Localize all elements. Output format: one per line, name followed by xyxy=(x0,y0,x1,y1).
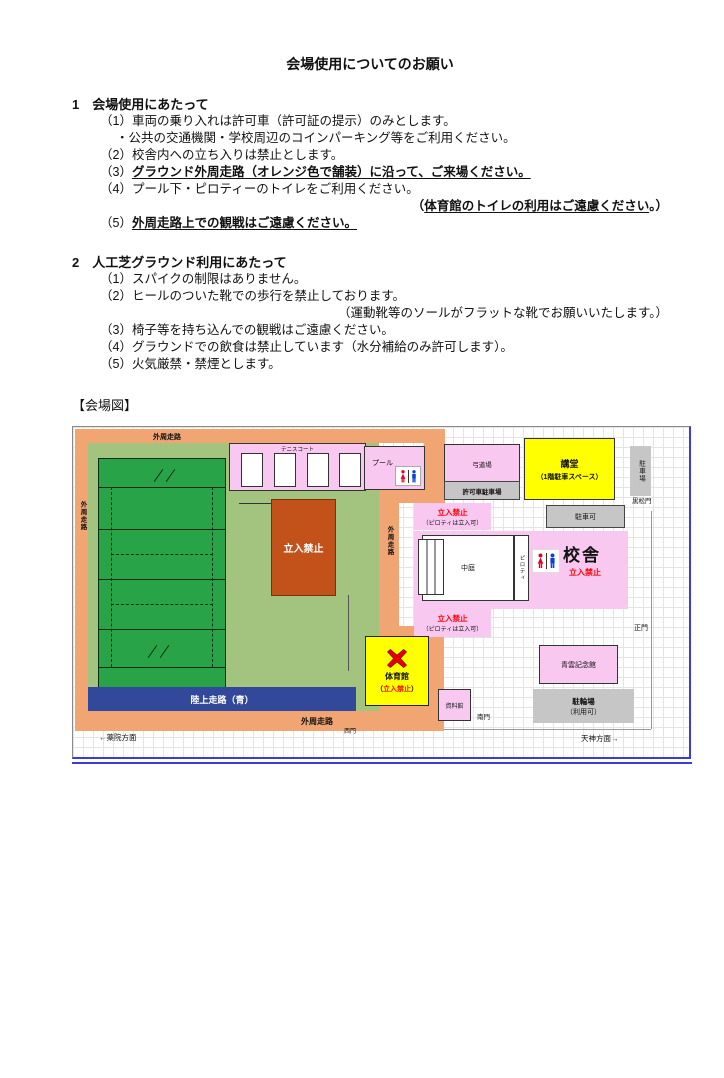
s1-item-1: （1）車両の乗り入れは許可車（許可証の提示）のみとします。 xyxy=(100,113,668,130)
auditorium: 講堂 （1階駐車スペース） xyxy=(524,438,615,500)
gym-label: 体育館 xyxy=(385,671,409,682)
pool-restroom xyxy=(395,466,421,486)
track-mid-label: 外周走路 xyxy=(384,526,394,556)
s2-item-3: （3）椅子等を持ち込んでの観戦はご遠慮ください。 xyxy=(100,322,668,339)
map-caption: 【会場図】 xyxy=(72,395,668,414)
pitch-line xyxy=(99,529,225,530)
s1-item-4-note-open: （ xyxy=(412,199,425,213)
pitch-mark xyxy=(166,469,175,482)
wc-divider xyxy=(408,470,409,483)
tennis-courts: テニスコート xyxy=(229,443,366,491)
s1-item-5: （5）外周走路上での観戦はご遠慮ください。 xyxy=(100,215,668,232)
s2-item-2-note: （運動靴等のソールがフラットな靴でお願いいたします。） xyxy=(72,305,668,322)
school-building-label: 校舎 xyxy=(563,541,601,566)
archives-hall: 資料館 xyxy=(438,689,471,721)
s2-item-2: （2）ヒールのついた靴での歩行を禁止しております。 xyxy=(100,288,668,305)
keepout-bottom-label: 立入禁止 xyxy=(438,613,468,624)
courtyard-label: 中庭 xyxy=(461,563,475,573)
s1-item-3-num: （3） xyxy=(100,165,132,179)
pitch-line-dashed xyxy=(111,604,213,605)
parking-lot: 駐車場 xyxy=(630,446,651,496)
parking-lot-label: 駐車場 xyxy=(636,460,646,483)
venue-map: 外周走路 外周走路 外周走路 外周走路 xyxy=(72,426,691,759)
wc-divider xyxy=(546,553,547,569)
keepout-top-label: 立入禁止 xyxy=(438,507,468,518)
tennis-court-outline xyxy=(339,453,361,487)
map-line xyxy=(348,595,349,671)
boundary-line-v xyxy=(651,511,652,729)
section1-heading: 1 会場使用にあたって xyxy=(72,94,668,113)
s1-item-2: （2）校舎内への立ち入りは禁止とします。 xyxy=(100,147,668,164)
s2-item-5: （5）火気厳禁・禁煙とします。 xyxy=(100,356,668,373)
s1-item-4-note-emph: 体育館のトイレの利用はご遠慮ください xyxy=(424,199,649,213)
s1-item-3-emph: グラウンド外周走路（オレンジ色で舗装）に沿って、ご来場ください。 xyxy=(132,165,531,179)
piloti-label: ピロティ xyxy=(518,555,526,581)
pitch-mark xyxy=(160,645,169,658)
gym-keepout: （立入禁止） xyxy=(376,684,418,694)
map-line xyxy=(239,503,271,504)
pitch-line xyxy=(99,629,225,630)
track-left: 外周走路 xyxy=(75,429,88,731)
main-gate-label: 正門 xyxy=(634,623,648,633)
gym-keepout-open: （ xyxy=(376,686,383,693)
turf-pitch xyxy=(98,458,226,692)
piloti-ok-bottom-label: （ピロティは立入可） xyxy=(423,624,483,633)
wc-male-icon xyxy=(549,553,556,569)
gym-keepout-close: ） xyxy=(411,686,418,693)
memorial-hall-label: 青雲記念館 xyxy=(561,660,596,670)
courtyard-wing xyxy=(418,539,444,595)
athletics-track-bar: 陸上走路（青） xyxy=(88,687,356,711)
pitch-line-dashed xyxy=(111,554,213,555)
tennis-court-outline xyxy=(274,453,296,487)
no-entry-x-icon xyxy=(385,649,409,668)
keepout-block-label: 立入禁止 xyxy=(284,540,324,555)
s1-item-1-sub: ・公共の交通機関・学校周辺のコインパーキング等をご利用ください。 xyxy=(116,130,668,147)
bicycle-parking: 駐輪場 （利用可） xyxy=(533,689,634,723)
memorial-hall: 青雲記念館 xyxy=(539,645,618,684)
piloti-strip: ピロティ xyxy=(514,535,529,601)
track-top: 外周走路 xyxy=(75,429,444,443)
pitch-line xyxy=(99,487,225,488)
s2-item-1: （1）スパイクの制限はありません。 xyxy=(100,271,668,288)
parking-allowed: 駐車可 xyxy=(546,505,625,528)
bicycle-parking-note: （利用可） xyxy=(566,707,601,717)
pitch-line xyxy=(99,667,225,668)
wc-male-icon xyxy=(411,470,417,483)
school-keepout-label: 立入禁止 xyxy=(569,567,601,578)
s1-item-4-note: （体育館のトイレの利用はご遠慮ください。） xyxy=(72,198,668,215)
s1-item-4-note-close: 。） xyxy=(649,199,668,213)
pitch-mark xyxy=(148,645,157,658)
track-top-label: 外周走路 xyxy=(153,432,181,442)
s1-item-5-emph: 外周走路上での観戦はご遠慮ください。 xyxy=(132,216,357,230)
kyudo-hall: 弓道場 xyxy=(444,444,520,483)
bicycle-parking-label: 駐輪場 xyxy=(572,696,595,707)
pool-label: プール xyxy=(372,458,393,468)
school-keepout-top: 立入禁止 （ピロティは立入可） xyxy=(414,503,491,530)
piloti-ok-top-label: （ピロティは立入可） xyxy=(423,518,483,527)
pitch-mark xyxy=(154,469,163,482)
tennis-label: テニスコート xyxy=(230,445,365,453)
school-restroom xyxy=(532,549,560,573)
map-border-underline xyxy=(72,762,692,764)
pitch-sideline xyxy=(111,487,112,667)
notice-document: 会場使用についてのお願い 1 会場使用にあたって （1）車両の乗り入れは許可車（… xyxy=(0,54,724,764)
wc-female-icon xyxy=(537,553,544,569)
west-gate-label: 西門 xyxy=(344,726,356,735)
archives-label: 資料館 xyxy=(445,701,463,710)
keepout-block: 立入禁止 xyxy=(271,499,336,596)
athletics-track-label: 陸上走路（青） xyxy=(190,693,253,706)
track-bottom-label: 外周走路 xyxy=(301,716,333,727)
track-left-label: 外周走路 xyxy=(77,501,87,531)
parking-allowed-label: 駐車可 xyxy=(575,512,596,522)
auditorium-name: 講堂 xyxy=(560,457,578,470)
s1-item-5-num: （5） xyxy=(100,216,132,230)
permit-parking-label: 許可車駐車場 xyxy=(463,486,502,496)
kyudo-label: 弓道場 xyxy=(472,459,492,469)
s1-item-4: （4）プール下・ピロティーのトイレをご利用ください。 xyxy=(100,181,668,198)
direction-yakuin: ←薬院方面 xyxy=(99,732,137,743)
auditorium-note: （1階駐車スペース） xyxy=(536,472,602,482)
pool: プール xyxy=(364,446,425,490)
gym-keepout-text: 立入禁止 xyxy=(383,686,411,693)
section2-heading: 2 人工芝グラウンド利用にあたって xyxy=(72,252,668,271)
permit-parking: 許可車駐車場 xyxy=(444,481,520,500)
tennis-court-outline xyxy=(241,453,263,487)
pitch-sideline xyxy=(212,487,213,667)
school-keepout-bottom: 立入禁止 （ピロティは立入可） xyxy=(414,609,491,637)
gymnasium: 体育館 （立入禁止） xyxy=(365,636,429,706)
page-title: 会場使用についてのお願い xyxy=(72,54,668,74)
south-gate-label: 南門 xyxy=(477,711,490,721)
s1-item-3: （3）グラウンド外周走路（オレンジ色で舗装）に沿って、ご来場ください。 xyxy=(100,164,668,181)
wc-female-icon xyxy=(400,470,406,483)
boundary-line-h xyxy=(444,729,651,730)
s2-item-4: （4）グラウンドでの飲食は禁止しています（水分補給のみ許可します）。 xyxy=(100,339,668,356)
direction-tenjin: 天神方面→ xyxy=(581,733,619,744)
kuromatsu-gate-label: 黒松門 xyxy=(632,495,652,505)
tennis-court-outline xyxy=(307,453,329,487)
track-bottom: 外周走路 xyxy=(75,711,444,731)
pitch-line xyxy=(99,579,225,580)
